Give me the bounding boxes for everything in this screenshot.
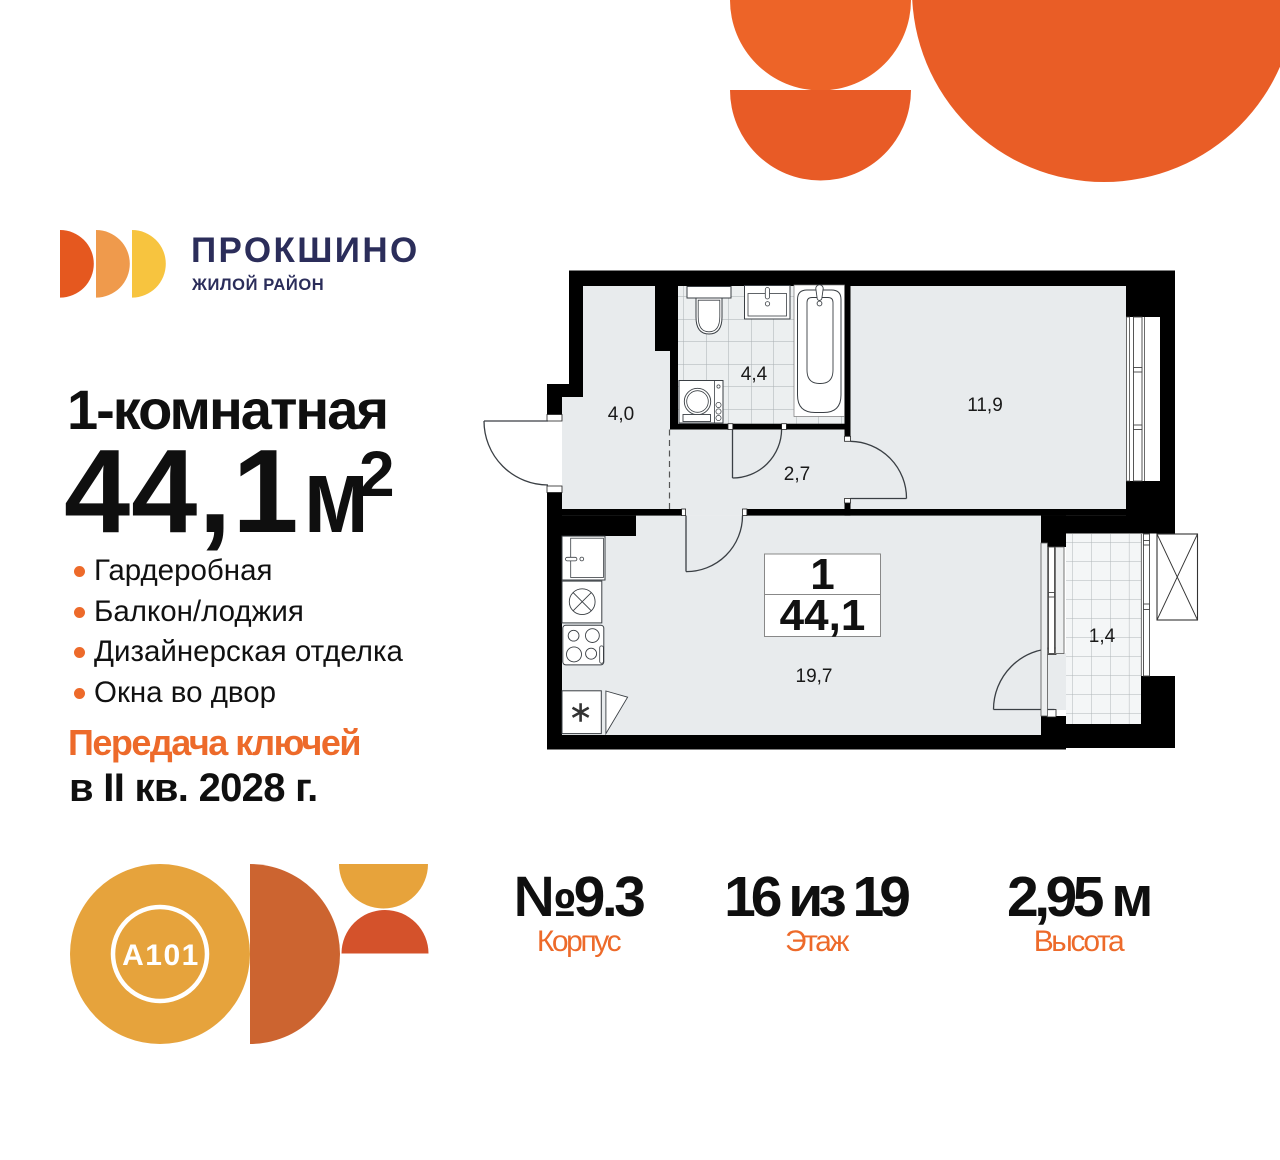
svg-text:4,0: 4,0 — [608, 404, 634, 425]
svg-text:1,4: 1,4 — [1089, 626, 1116, 647]
svg-text:44,1: 44,1 — [780, 591, 866, 640]
svg-text:A101: A101 — [122, 939, 200, 972]
svg-text:11,9: 11,9 — [967, 395, 1003, 416]
svg-text:19,7: 19,7 — [796, 666, 833, 687]
svg-text:4,4: 4,4 — [741, 364, 768, 385]
svg-text:2,7: 2,7 — [784, 464, 810, 485]
